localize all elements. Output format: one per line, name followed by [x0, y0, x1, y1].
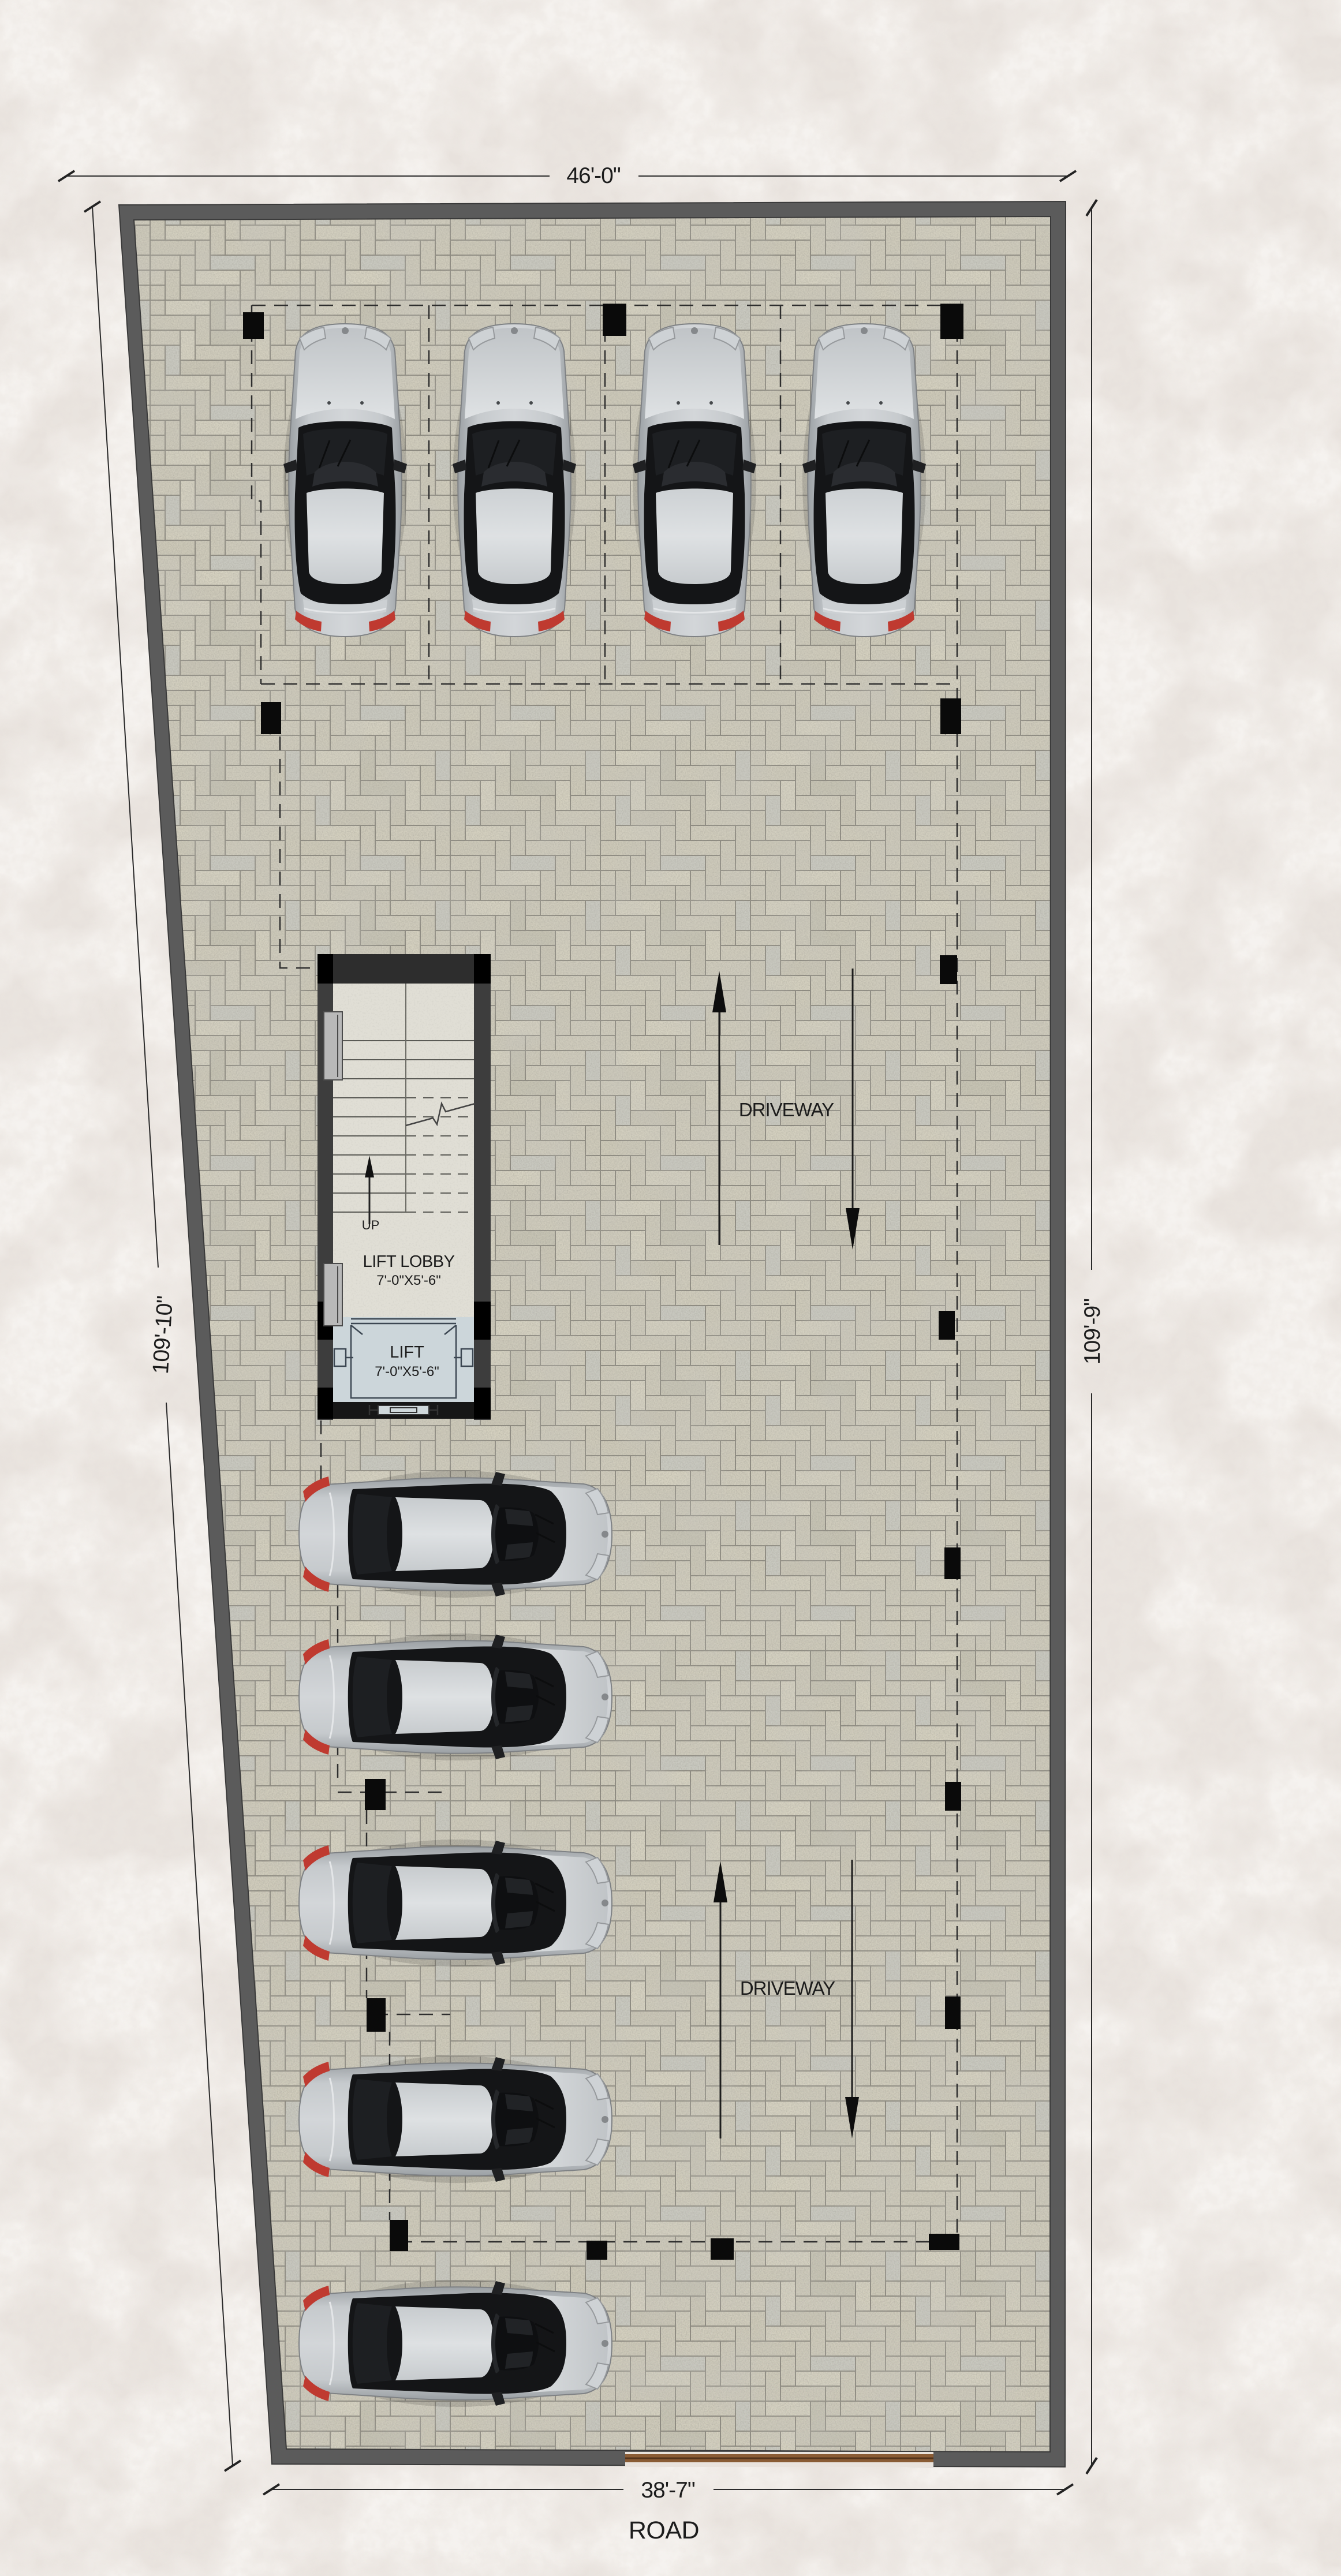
- svg-text:109'-9": 109'-9": [1080, 1299, 1105, 1364]
- svg-text:LIFT: LIFT: [390, 1343, 424, 1362]
- svg-text:DRIVEWAY: DRIVEWAY: [740, 1977, 835, 1999]
- svg-text:46'-0": 46'-0": [566, 163, 621, 188]
- svg-text:LIFT LOBBY: LIFT LOBBY: [363, 1253, 455, 1271]
- svg-text:7'-0"X5'-6": 7'-0"X5'-6": [376, 1273, 441, 1288]
- svg-text:UP: UP: [362, 1218, 380, 1232]
- svg-text:ROAD: ROAD: [629, 2517, 699, 2544]
- svg-text:38'-7": 38'-7": [641, 2478, 695, 2503]
- svg-text:109'-10": 109'-10": [148, 1295, 178, 1374]
- svg-text:DRIVEWAY: DRIVEWAY: [739, 1099, 834, 1120]
- svg-text:7'-0"X5'-6": 7'-0"X5'-6": [375, 1364, 439, 1379]
